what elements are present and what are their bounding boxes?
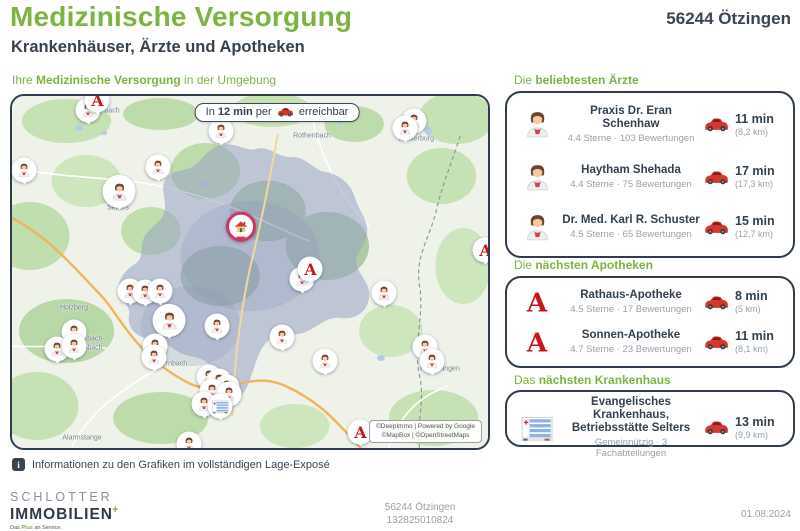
doctor-icon [146,349,163,366]
doctor-map-pin [270,325,295,350]
logo-plus-icon: + [112,504,119,516]
travel-distance: (12,7 km) [735,229,775,239]
pharmacies-card: Rathaus-Apotheke 4.5 Sterne · 17 Bewertu… [505,276,795,368]
doctor-map-pin [146,155,171,180]
doctor-icon [152,283,169,300]
pharmacies-section-title: Die nächsten Apotheken [514,258,653,272]
doctor-icon [515,108,559,141]
town-label: bach- [87,336,105,343]
car-icon [703,169,729,186]
travel-info: 11 min (8,2 km) [703,113,785,137]
info-note-text: Informationen zu den Grafiken im vollstä… [32,459,330,471]
doctor-map-pin [103,175,136,208]
hospital-map-pin [208,394,233,419]
travel-time: 15 min [735,215,775,228]
place-info: Sonnen-Apotheke 4.7 Sterne · 23 Bewertun… [559,329,703,355]
doctor-list-item: Dr. Med. Karl R. Schuster 4.5 Sterne · 6… [515,211,785,244]
company-logo: SCHLOTTER IMMOBILIEN+ Das Plus an Servic… [10,490,119,531]
doctor-icon [376,285,393,302]
town-label: Holzberg [60,305,88,312]
home-icon [232,218,250,236]
car-icon [277,106,294,118]
doctor-icon [209,318,226,335]
info-note: i Informationen zu den Grafiken im volls… [12,458,330,471]
doctor-map-pin [393,116,418,141]
doctor-map-pin [205,314,230,339]
place-info: Dr. Med. Karl R. Schuster 4.5 Sterne · 6… [559,214,703,240]
doctor-map-pin [142,345,167,370]
pharmacy-icon [88,94,106,109]
place-name: Evangelisches Krankenhaus, Betriebsstätt… [561,396,701,435]
doctor-map-pin [153,304,186,337]
doctor-icon [181,436,198,451]
travel-time: 8 min [735,290,768,303]
place-rating: 4.7 Sterne · 23 Bewertungen [561,344,701,355]
travel-time: 17 min [735,165,775,178]
place-rating: 4.5 Sterne · 65 Bewertungen [561,229,701,240]
doctors-section-title: Die beliebtesten Ärzte [514,73,639,87]
pharmacy-icon [515,287,559,317]
map-attribution: ©DeepImmo | Powered by Google ©MapBox | … [369,420,482,443]
car-icon [703,116,729,133]
place-rating: Gemeinnützig · 3 Fachabteilungen [561,437,701,459]
travel-info: 13 min (9,9 km) [703,416,785,440]
doctor-icon [213,123,230,140]
pharmacy-map-pin [473,238,491,263]
town-label: bach [104,108,119,115]
doctor-map-pin [420,349,445,374]
doctor-icon [150,159,167,176]
doctor-map-pin [372,281,397,306]
postal-location: 56244 Ötzingen [666,9,791,29]
travel-time: 11 min [735,330,774,343]
reachability-badge: In 12 min per erreichbar [195,103,360,122]
travel-time: 13 min [735,416,775,429]
pharmacy-icon [515,327,559,357]
car-icon [703,294,729,311]
doctor-icon [424,353,441,370]
place-rating: 4.4 Sterne · 103 Bewertungen [561,133,701,144]
place-name: Haytham Shehada [561,164,701,177]
pharmacy-map-pin [298,257,323,282]
hospital-section-title: Das nächsten Krankenhaus [514,373,671,387]
page-subtitle: Krankenhäuser, Ärzte und Apotheken [11,38,305,57]
travel-info: 11 min (8,1 km) [703,330,785,354]
travel-info: 17 min (17,3 km) [703,165,785,189]
pharmacy-icon [301,260,319,278]
place-name: Sonnen-Apotheke [561,329,701,342]
town-label: Rothenbach [293,133,331,140]
place-rating: 4.5 Sterne · 17 Bewertungen [561,304,701,315]
pharmacy-list-item: Rathaus-Apotheke 4.5 Sterne · 17 Bewertu… [515,287,785,317]
info-icon: i [12,458,25,471]
travel-info: 8 min (5 km) [703,290,785,314]
travel-distance: (8,2 km) [735,127,774,137]
doctor-icon [397,120,414,137]
hospital-icon [515,413,559,443]
doctor-icon [317,353,334,370]
hospital-list-item: Evangelisches Krankenhaus, Betriebsstätt… [515,396,785,459]
travel-distance: (17,3 km) [735,179,775,189]
car-icon [703,219,729,236]
map-base [12,96,488,448]
logo-tagline: Das Plus an Service. [10,525,119,531]
place-info: Haytham Shehada 4.4 Sterne · 75 Bewertun… [559,164,703,190]
pharmacy-list-item: Sonnen-Apotheke 4.7 Sterne · 23 Bewertun… [515,327,785,357]
hospital-icon [210,398,230,414]
place-rating: 4.4 Sterne · 75 Bewertungen [561,179,701,190]
footer-date: 01.08.2024 [741,509,791,520]
doctor-icon [66,338,83,355]
footer-reference: 56244 Ötzingen 132825010824 [340,501,500,527]
map: bachRothenbachWesterburgSeltersHolzbergb… [10,94,490,450]
place-name: Rathaus-Apotheke [561,289,701,302]
place-name: Praxis Dr. Eran Schenhaw [561,105,701,131]
logo-line2: IMMOBILIEN+ [10,504,119,524]
home-map-pin [226,212,256,242]
doctor-list-item: Haytham Shehada 4.4 Sterne · 75 Bewertun… [515,161,785,194]
car-icon [703,334,729,351]
doctor-icon [108,180,130,202]
doctor-map-pin [12,158,37,183]
place-info: Evangelisches Krankenhaus, Betriebsstätt… [559,396,703,459]
doctor-map-pin [209,119,234,144]
travel-time: 11 min [735,113,774,126]
doctor-map-pin [62,334,87,359]
map-section-title: Ihre Medizinische Versorgung in der Umge… [12,73,276,87]
doctors-card: Praxis Dr. Eran Schenhaw 4.4 Sterne · 10… [505,91,795,258]
doctor-icon [274,329,291,346]
doctor-list-item: Praxis Dr. Eran Schenhaw 4.4 Sterne · 10… [515,105,785,144]
travel-distance: (9,9 km) [735,430,775,440]
doctor-map-pin [148,279,173,304]
doctor-map-pin [177,432,202,451]
page-title: Medizinische Versorgung [10,1,352,33]
expose-page: Medizinische Versorgung Krankenhäuser, Ä… [0,0,800,531]
car-icon [703,419,729,436]
doctor-icon [158,309,180,331]
doctor-map-pin [313,349,338,374]
pharmacy-icon [476,241,490,259]
town-label: Alarmstange [62,435,101,442]
doctor-icon [515,211,559,244]
doctor-icon [16,162,33,179]
doctor-icon [515,161,559,194]
travel-distance: (5 km) [735,304,768,314]
place-info: Rathaus-Apotheke 4.5 Sterne · 17 Bewertu… [559,289,703,315]
travel-distance: (8,1 km) [735,344,774,354]
hospital-card: Evangelisches Krankenhaus, Betriebsstätt… [505,390,795,447]
place-name: Dr. Med. Karl R. Schuster [561,214,701,227]
pharmacy-icon [351,423,369,441]
place-info: Praxis Dr. Eran Schenhaw 4.4 Sterne · 10… [559,105,703,144]
travel-info: 15 min (12,7 km) [703,215,785,239]
logo-line1: SCHLOTTER [10,490,119,504]
